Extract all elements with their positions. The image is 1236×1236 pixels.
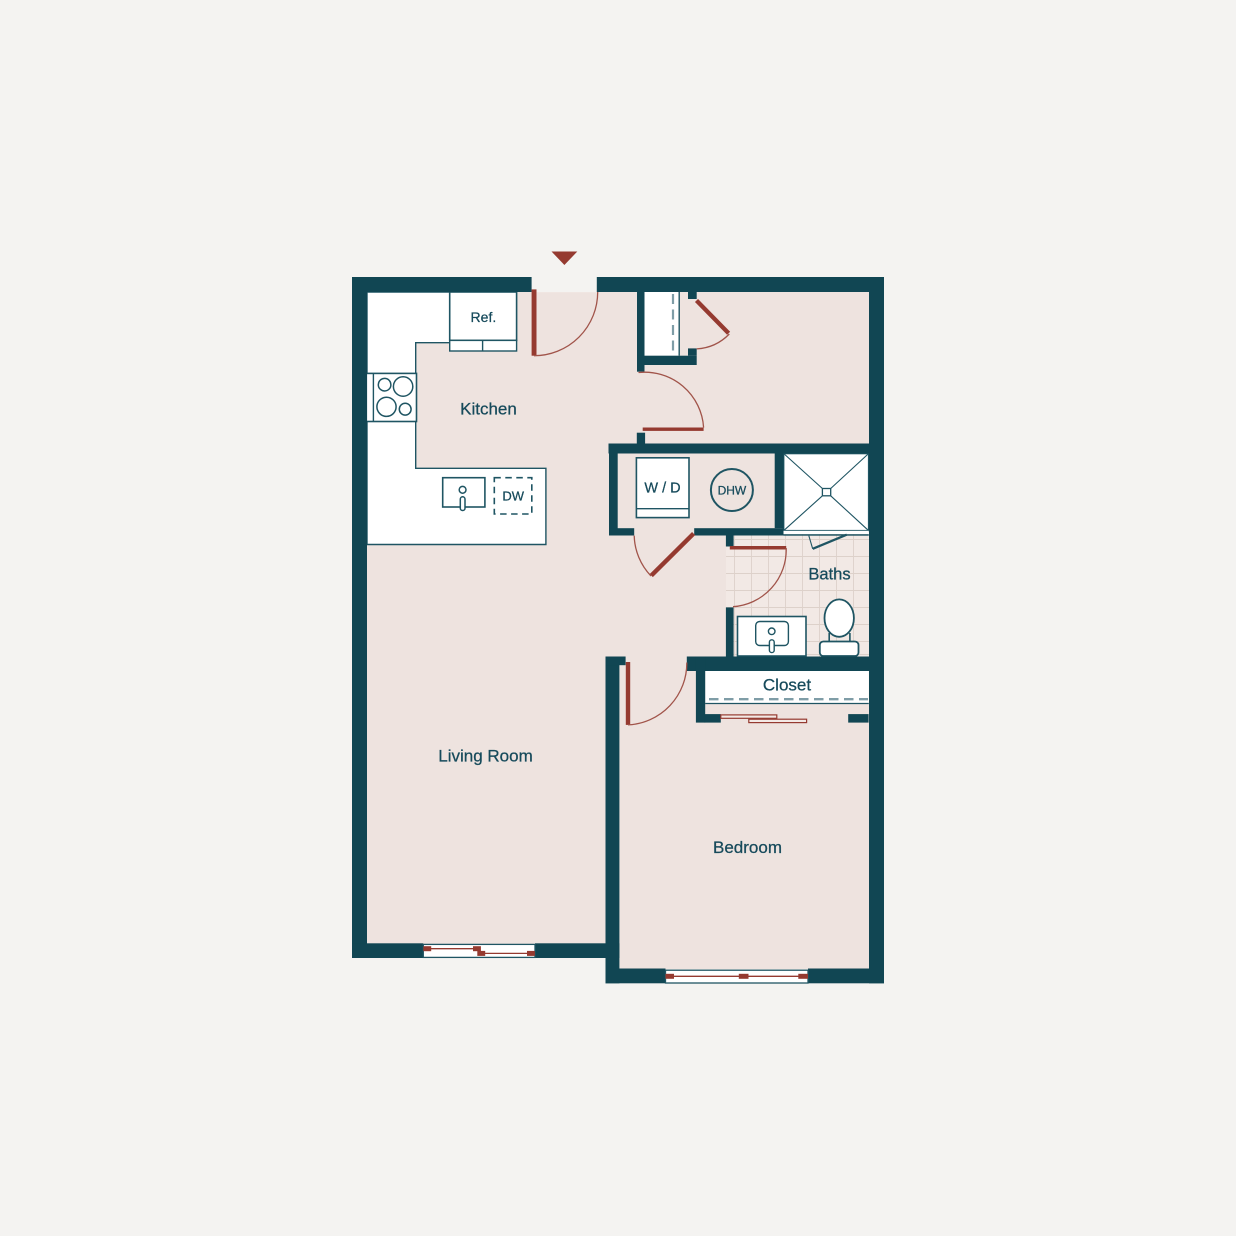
svg-text:Living Room: Living Room [438, 747, 533, 766]
svg-text:W / D: W / D [644, 481, 680, 497]
svg-text:DW: DW [502, 489, 524, 504]
svg-text:Baths: Baths [808, 565, 850, 583]
svg-text:Bedroom: Bedroom [713, 838, 782, 857]
svg-text:Closet: Closet [763, 676, 811, 695]
svg-text:Ref.: Ref. [471, 309, 497, 325]
svg-text:Kitchen: Kitchen [460, 400, 517, 419]
svg-text:DHW: DHW [718, 484, 747, 498]
